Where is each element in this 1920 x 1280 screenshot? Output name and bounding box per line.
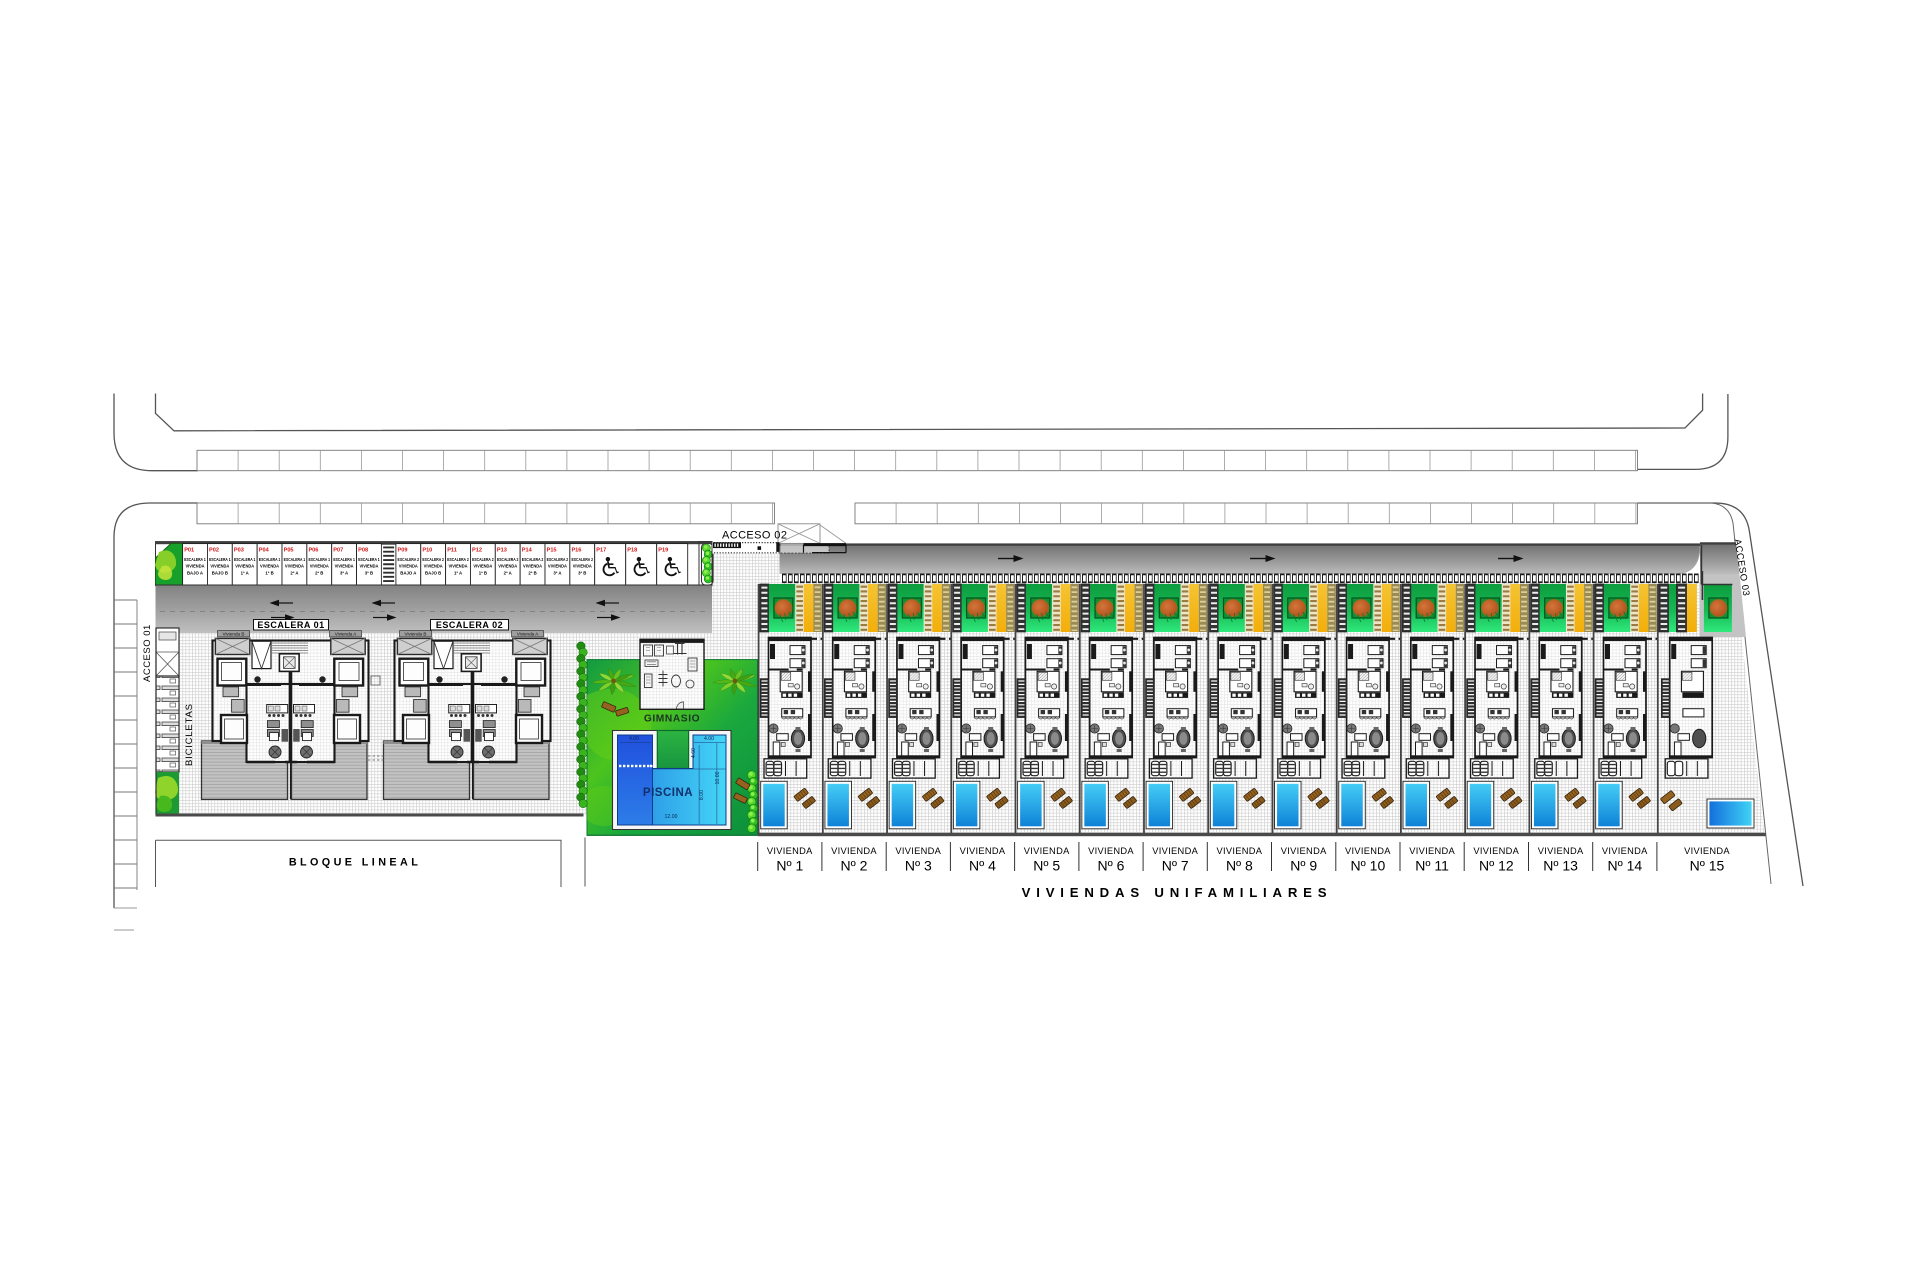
- svg-text:P06: P06: [308, 548, 318, 554]
- svg-text:VIVIENDA: VIVIENDA: [1216, 846, 1262, 856]
- svg-text:Nº 13: Nº 13: [1543, 858, 1578, 874]
- svg-text:P04: P04: [259, 548, 270, 554]
- svg-text:VIVIENDA: VIVIENDA: [895, 846, 941, 856]
- svg-text:BAJO A: BAJO A: [187, 570, 203, 575]
- svg-text:Nº 10: Nº 10: [1351, 858, 1386, 874]
- svg-text:ESCALERA 2: ESCALERA 2: [497, 557, 519, 562]
- svg-text:BICICLETAS: BICICLETAS: [184, 703, 195, 766]
- svg-text:ESCALERA 1: ESCALERA 1: [333, 557, 355, 562]
- svg-text:P18: P18: [627, 548, 637, 554]
- svg-text:Nº 12: Nº 12: [1479, 858, 1514, 874]
- svg-text:VIVIENDA: VIVIENDA: [831, 846, 877, 856]
- svg-text:3ª A: 3ª A: [553, 570, 561, 575]
- svg-text:P10: P10: [422, 548, 432, 554]
- svg-text:P12: P12: [472, 548, 482, 554]
- svg-text:Nº 2: Nº 2: [841, 858, 868, 874]
- svg-text:VIVIENDA: VIVIENDA: [1024, 846, 1070, 856]
- svg-text:ESCALERA 1: ESCALERA 1: [234, 557, 256, 562]
- svg-text:VIVIENDA: VIVIENDA: [186, 564, 205, 569]
- svg-text:BLOQUE LINEAL: BLOQUE LINEAL: [289, 857, 421, 869]
- svg-text:ACCESO 01: ACCESO 01: [142, 624, 153, 682]
- svg-text:4.00: 4.00: [704, 736, 714, 742]
- svg-text:3ª B: 3ª B: [578, 570, 586, 575]
- svg-text:P14: P14: [522, 548, 533, 554]
- svg-text:BAJO B: BAJO B: [212, 570, 228, 575]
- svg-text:VIVIENDA: VIVIENDA: [335, 564, 354, 569]
- svg-text:1ª B: 1ª B: [479, 570, 487, 575]
- svg-text:ESCALERA 2: ESCALERA 2: [447, 557, 469, 562]
- svg-text:Nº 3: Nº 3: [905, 858, 932, 874]
- svg-text:VIVIENDA: VIVIENDA: [1088, 846, 1134, 856]
- svg-text:VIVIENDA: VIVIENDA: [523, 564, 542, 569]
- svg-text:Nº 4: Nº 4: [969, 858, 996, 874]
- svg-text:VIVIENDA: VIVIENDA: [210, 564, 229, 569]
- svg-text:4.00: 4.00: [629, 736, 639, 742]
- svg-text:VIVIENDA: VIVIENDA: [449, 564, 468, 569]
- svg-text:VIVIENDA: VIVIENDA: [498, 564, 517, 569]
- svg-text:VIVIENDA: VIVIENDA: [359, 564, 378, 569]
- svg-text:P13: P13: [497, 548, 507, 554]
- svg-text:Nº 9: Nº 9: [1290, 858, 1317, 874]
- svg-text:ACCESO 02: ACCESO 02: [722, 530, 787, 542]
- svg-text:ESCALERA 2: ESCALERA 2: [472, 557, 494, 562]
- svg-text:1ª B: 1ª B: [265, 570, 273, 575]
- svg-text:Nº 14: Nº 14: [1607, 858, 1642, 874]
- svg-text:P01: P01: [184, 548, 194, 554]
- svg-text:2ª A: 2ª A: [504, 570, 512, 575]
- svg-text:4.60: 4.60: [691, 748, 697, 758]
- svg-text:P05: P05: [284, 548, 294, 554]
- svg-text:P08: P08: [358, 548, 368, 554]
- svg-text:ESCALERA 1: ESCALERA 1: [284, 557, 306, 562]
- svg-text:ESCALERA 01: ESCALERA 01: [257, 620, 324, 630]
- svg-text:Nº 8: Nº 8: [1226, 858, 1253, 874]
- svg-text:1ª A: 1ª A: [454, 570, 462, 575]
- svg-text:ESCALERA 2: ESCALERA 2: [522, 557, 544, 562]
- svg-text:PISCINA: PISCINA: [643, 787, 693, 799]
- svg-text:VIVIENDA: VIVIENDA: [1409, 846, 1455, 856]
- svg-text:Nº 6: Nº 6: [1098, 858, 1125, 874]
- svg-text:2ª A: 2ª A: [290, 570, 298, 575]
- svg-text:VIVIENDA: VIVIENDA: [960, 846, 1006, 856]
- svg-text:ESCALERA 1: ESCALERA 1: [358, 557, 380, 562]
- svg-text:VIVIENDA: VIVIENDA: [1684, 846, 1730, 856]
- svg-text:1ª A: 1ª A: [241, 570, 249, 575]
- svg-text:VIVIENDA: VIVIENDA: [1345, 846, 1391, 856]
- svg-text:ESCALERA 2: ESCALERA 2: [398, 557, 420, 562]
- svg-text:P15: P15: [547, 548, 557, 554]
- svg-text:VIVIENDA: VIVIENDA: [285, 564, 304, 569]
- svg-text:VIVIENDA: VIVIENDA: [424, 564, 443, 569]
- svg-text:P16: P16: [571, 548, 581, 554]
- svg-text:8.00: 8.00: [699, 790, 705, 800]
- svg-text:ESCALERA 02: ESCALERA 02: [436, 620, 503, 630]
- svg-text:Nº 15: Nº 15: [1690, 858, 1725, 874]
- svg-text:ESCALERA 2: ESCALERA 2: [572, 557, 594, 562]
- svg-text:VIVIENDA: VIVIENDA: [235, 564, 254, 569]
- svg-text:2ª B: 2ª B: [528, 570, 536, 575]
- svg-text:2ª B: 2ª B: [315, 570, 323, 575]
- svg-text:Nº 1: Nº 1: [776, 858, 803, 874]
- svg-text:ESCALERA 1: ESCALERA 1: [209, 557, 231, 562]
- svg-text:Nº 7: Nº 7: [1162, 858, 1189, 874]
- svg-text:GIMNASIO: GIMNASIO: [644, 714, 700, 725]
- svg-text:P02: P02: [209, 548, 219, 554]
- svg-text:ESCALERA 1: ESCALERA 1: [259, 557, 281, 562]
- svg-text:Nº 11: Nº 11: [1415, 858, 1449, 874]
- svg-text:VIVIENDAS UNIFAMILIARES: VIVIENDAS UNIFAMILIARES: [1022, 885, 1333, 900]
- svg-text:BAJO A: BAJO A: [400, 570, 416, 575]
- svg-text:3ª A: 3ª A: [340, 570, 348, 575]
- svg-text:ESCALERA 1: ESCALERA 1: [184, 557, 206, 562]
- svg-text:ESCALERA 2: ESCALERA 2: [422, 557, 444, 562]
- svg-text:VIVIENDA: VIVIENDA: [473, 564, 492, 569]
- svg-text:BAJO B: BAJO B: [425, 570, 441, 575]
- svg-text:VIVIENDA: VIVIENDA: [310, 564, 329, 569]
- svg-text:10.00: 10.00: [715, 771, 721, 784]
- svg-text:ESCALERA 2: ESCALERA 2: [547, 557, 569, 562]
- svg-text:VIVIENDA: VIVIENDA: [260, 564, 279, 569]
- svg-text:VIVIENDA: VIVIENDA: [548, 564, 567, 569]
- svg-text:P17: P17: [596, 548, 606, 554]
- svg-text:VIVIENDA: VIVIENDA: [1473, 846, 1519, 856]
- svg-text:VIVIENDA: VIVIENDA: [1281, 846, 1327, 856]
- svg-text:P09: P09: [398, 548, 408, 554]
- svg-text:VIVIENDA: VIVIENDA: [399, 564, 418, 569]
- svg-text:12.00: 12.00: [665, 814, 678, 820]
- svg-text:3ª B: 3ª B: [365, 570, 373, 575]
- svg-text:P07: P07: [333, 548, 343, 554]
- svg-text:VIVIENDA: VIVIENDA: [1152, 846, 1198, 856]
- svg-text:ESCALERA 1: ESCALERA 1: [309, 557, 331, 562]
- svg-text:P11: P11: [447, 548, 457, 554]
- svg-text:P03: P03: [234, 548, 244, 554]
- svg-text:VIVIENDA: VIVIENDA: [1602, 846, 1648, 856]
- svg-text:VIVIENDA: VIVIENDA: [573, 564, 592, 569]
- svg-text:VIVIENDA: VIVIENDA: [1538, 846, 1584, 856]
- svg-text:VIVIENDA: VIVIENDA: [767, 846, 813, 856]
- svg-text:Nº 5: Nº 5: [1033, 858, 1060, 874]
- svg-text:P19: P19: [658, 548, 668, 554]
